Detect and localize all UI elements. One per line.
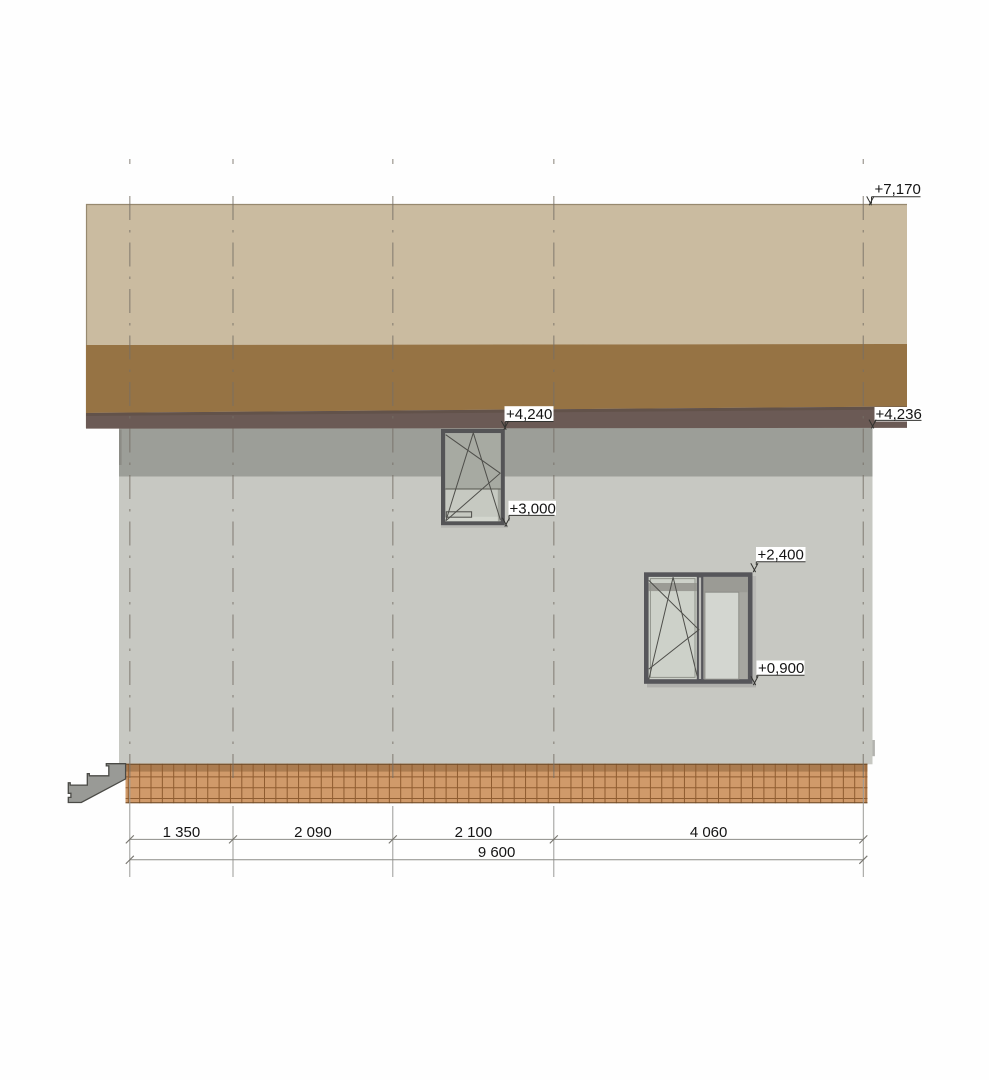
svg-text:+2,400: +2,400 bbox=[758, 547, 804, 564]
svg-text:2 090: 2 090 bbox=[294, 824, 332, 841]
svg-text:+3,000: +3,000 bbox=[510, 500, 556, 517]
svg-text:+7,170: +7,170 bbox=[875, 181, 921, 198]
svg-text:4 060: 4 060 bbox=[690, 824, 728, 841]
svg-text:+0,900: +0,900 bbox=[758, 660, 804, 677]
svg-text:1 350: 1 350 bbox=[163, 824, 201, 841]
svg-text:2 100: 2 100 bbox=[455, 824, 493, 841]
svg-text:+4,240: +4,240 bbox=[506, 406, 552, 423]
svg-text:9 600: 9 600 bbox=[478, 844, 516, 861]
